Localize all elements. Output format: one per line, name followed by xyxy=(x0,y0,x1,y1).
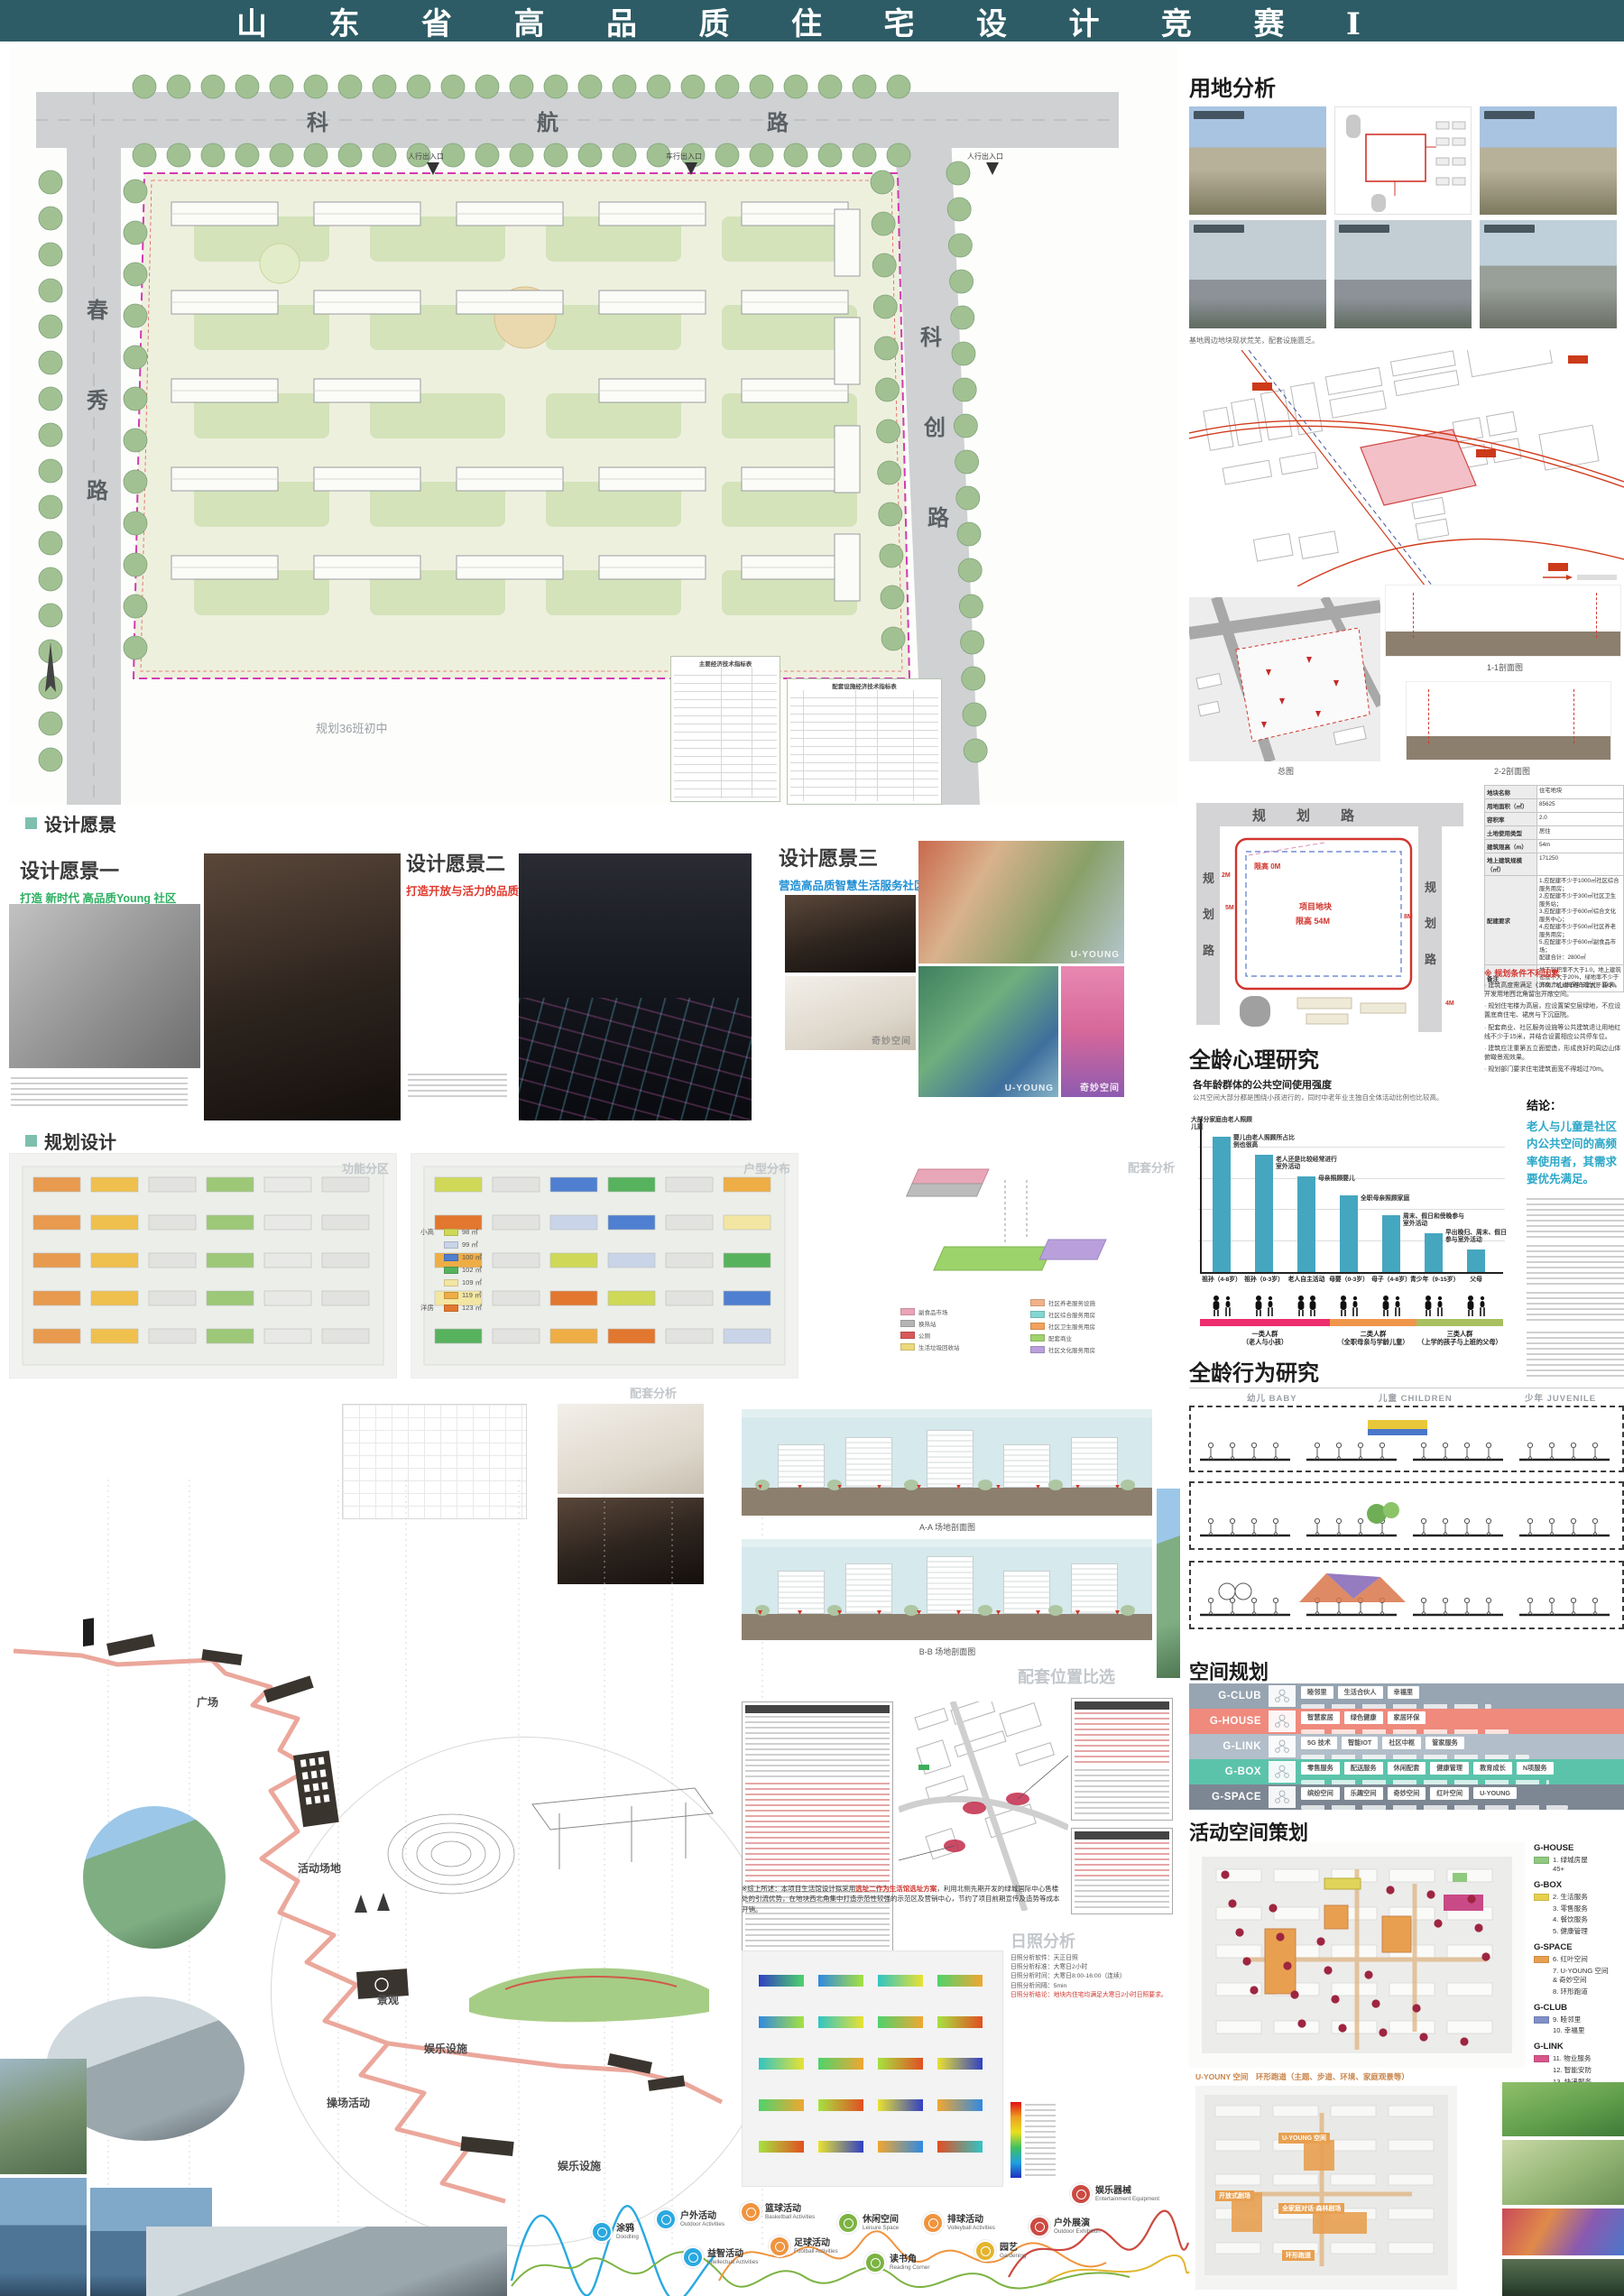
conditions-row: 用地面积（㎡）85625 xyxy=(1485,799,1623,813)
ap-legend-item: 11. 物业服务 xyxy=(1534,2054,1624,2063)
section-ground xyxy=(742,1488,1152,1516)
watermark-wonder-space: 奇妙空间 xyxy=(872,1033,911,1047)
sunshine-building xyxy=(759,2141,804,2153)
space-band-g-link: G-LINK5G 技术智能IOT社区中枢管家服务 xyxy=(1189,1734,1624,1759)
textbox-body-text xyxy=(1075,1769,1169,1814)
section-tree xyxy=(1048,1480,1063,1490)
site-analysis-caption: 基地周边地块现状荒芜，配套设施匮乏。 xyxy=(1189,336,1319,346)
band-chip: 幸福里 xyxy=(1388,1686,1420,1699)
poster-title-bar: 山 东 省 高 品 质 住 宅 设 计 竞 赛 Ⅰ xyxy=(0,0,1624,41)
activity-badge-text: 娱乐器械Entertainment Equipment xyxy=(1095,2186,1159,2202)
conditions-diagram: 规划路 规 划 路 规 划 路 限高 0M 项目地块 限高 54M 2M 5M … xyxy=(1189,783,1478,1032)
people-pictogram-icon xyxy=(1333,1294,1364,1317)
bar-category: 祖孙（4-8岁） xyxy=(1198,1277,1245,1284)
section-marker-icon xyxy=(25,1135,37,1147)
table-body xyxy=(790,690,938,801)
activity-badge-text: 涂鸦Doodling xyxy=(616,2224,639,2240)
photo-label-chip xyxy=(1339,225,1389,233)
ap-legend-text: 11. 物业服务 xyxy=(1553,2054,1591,2063)
activity-icon xyxy=(740,2201,761,2223)
activity-en-label: Outdoor Activities xyxy=(680,2221,724,2227)
watermark-wonder-space: 奇妙空间 xyxy=(1080,1080,1120,1093)
legend-swatch xyxy=(1534,1894,1549,1901)
conclusion-title: 结论： xyxy=(1527,1096,1624,1113)
activity-icon xyxy=(864,2252,886,2273)
svg-text:科: 科 xyxy=(307,111,328,135)
unit-legend-row: 119 ㎡ xyxy=(420,1290,482,1300)
issue-item: 规划住宅楼为高层，应设置架空层绿地，不应设置底商住宅、裙房与下沉庭院。 xyxy=(1484,1002,1624,1020)
ap-legend-item: 12. 智能安防 xyxy=(1534,2066,1624,2075)
watermark-u-young: U-YOUNG xyxy=(1005,1083,1054,1093)
activity-en-label: Doodling xyxy=(616,2234,639,2240)
section-building xyxy=(845,1437,892,1488)
conclusion-text: 老人与儿童是社区内公共空间的高频率使用者，其需求要优先满足。 xyxy=(1527,1119,1624,1189)
band-chips: 缤纷空间乐趣空间奇妙空间红叶空间U-YOUNG xyxy=(1296,1784,1624,1810)
bar-7 xyxy=(1467,1249,1485,1272)
group-band-label: 二类人群 （全职母亲与学龄儿童） xyxy=(1330,1330,1416,1347)
activity-zh-label: 篮球活动 xyxy=(765,2204,815,2214)
site-photo-4 xyxy=(1189,220,1326,328)
sunshine-building xyxy=(759,2016,804,2028)
vision-2-caption-text xyxy=(408,1074,507,1097)
activity-zh-label: 户外活动 xyxy=(680,2211,724,2221)
band-chip: 智慧家居 xyxy=(1301,1711,1340,1724)
band-chip: 5G 技术 xyxy=(1301,1737,1337,1749)
activity-en-label: Reading Corner xyxy=(890,2264,929,2271)
legend-swatch xyxy=(1534,1968,1549,1975)
people-pictogram-icon xyxy=(1206,1294,1237,1317)
svg-text:人行出入口: 人行出入口 xyxy=(408,152,444,161)
sunshine-param: 日照分析软件：天正日照 xyxy=(1010,1954,1173,1963)
context-axon-map xyxy=(1189,350,1624,586)
people-pictogram-icon xyxy=(1291,1294,1322,1317)
activity-badge-6: 休闲空间Leisure Space xyxy=(837,2212,899,2234)
ap-legend-text: 1. 绿城房屋 45+ xyxy=(1553,1856,1588,1874)
amenity-legend-label: 社区文化服务用房 xyxy=(1048,1345,1095,1354)
master-plan: 科航路春秀路科创路人行出入口车行出入口人行出入口规划36班初中 主要经济技术指标… xyxy=(9,47,1177,805)
legend-swatch xyxy=(444,1292,458,1299)
textbox-heading xyxy=(1075,1701,1169,1710)
conditions-row: 地上建筑规模（㎡）171250 xyxy=(1485,853,1623,876)
svg-text:2M: 2M xyxy=(1222,872,1231,879)
activity-zh-label: 益智活动 xyxy=(707,2249,758,2259)
bar-category: 父母 xyxy=(1453,1277,1499,1284)
competition-board: 山 东 省 高 品 质 住 宅 设 计 竞 赛 Ⅰ 科航路春秀路科创路人行出入口… xyxy=(0,0,1624,2296)
band-glyph-icon xyxy=(1269,1710,1296,1732)
group-band-label: 三类人群 （上学的孩子与上班的父母） xyxy=(1416,1330,1503,1347)
activity-plan-drawing xyxy=(1189,1842,1525,2068)
sunshine-building xyxy=(878,2058,923,2070)
svg-text:路: 路 xyxy=(87,478,109,503)
edge-photo-strip xyxy=(1157,1489,1180,1678)
space-band-g-box: G-BOX零售服务配送服务休闲配套健康管理教育成长N项服务 xyxy=(1189,1759,1624,1784)
sunshine-building xyxy=(937,1975,983,1987)
section-building xyxy=(778,1571,825,1614)
bottom-photo-street xyxy=(146,2227,507,2296)
legend-swatch xyxy=(1534,1916,1549,1923)
ap-legend-group: G-CLUB xyxy=(1534,2003,1624,2013)
plan2-label-uyoung: U-YOUNG 空间 xyxy=(1278,2133,1330,2144)
textbox-body-text xyxy=(745,1716,890,1779)
sunshine-param: 日照分析时间：大寒日8:00-16:00（连续） xyxy=(1010,1972,1173,1981)
vision-item-3: 设计愿景三 营造高品质智慧生活服务社区 xyxy=(779,843,926,893)
conditions-key: 建筑限高（m） xyxy=(1485,840,1537,853)
band-chip: 睦邻里 xyxy=(1301,1686,1333,1699)
section-a-drawing xyxy=(742,1409,1152,1516)
ap-legend-text: 2. 生活服务 xyxy=(1553,1893,1588,1902)
siting-axon-diagram xyxy=(899,1701,1068,1911)
svg-text:路: 路 xyxy=(1203,944,1215,957)
band-name-label: G-HOUSE xyxy=(1189,1709,1269,1734)
band-chip: 乐趣空间 xyxy=(1344,1787,1383,1800)
amenity-legend-label: 副食品市场 xyxy=(918,1307,948,1316)
ap-legend-text: 3. 零售服务 xyxy=(1553,1904,1588,1913)
unit-legend-label: 102 ㎡ xyxy=(462,1265,482,1275)
textbox-heading xyxy=(745,1705,890,1713)
unit-legend-label: 123 ㎡ xyxy=(462,1303,482,1313)
amenity-legend-label: 社区养老服务设施 xyxy=(1048,1298,1095,1307)
svg-text:科: 科 xyxy=(920,326,942,350)
ap-legend-text: 12. 智能安防 xyxy=(1553,2066,1592,2075)
bar-1 xyxy=(1213,1137,1231,1272)
space-band-g-house: G-HOUSE智慧家居绿色健康家居环保 xyxy=(1189,1709,1624,1734)
section-tree xyxy=(1121,1480,1135,1490)
section-building xyxy=(927,1556,973,1614)
svg-text:规划36班初中: 规划36班初中 xyxy=(316,722,387,735)
conclusion-paragraph-text xyxy=(1527,1332,1624,1379)
svg-text:车行出入口: 车行出入口 xyxy=(666,152,702,161)
svg-text:路: 路 xyxy=(927,505,950,530)
ap-legend-item: 3. 零售服务 xyxy=(1534,1904,1624,1913)
legend-swatch xyxy=(900,1320,915,1327)
journey-label: 娱乐设施 xyxy=(558,2158,601,2173)
conditions-value: 171250 xyxy=(1537,853,1623,875)
diagram-amenity-analysis: 配套分析 副食品市场换热站公厕生活垃圾回收站 社区养老服务设施社区综合服务用房社… xyxy=(812,1153,1182,1379)
section-b-caption: B-B 场地剖面图 xyxy=(884,1646,1010,1657)
bar-annotation: 周末、假日和傍晚参与室外活动 xyxy=(1403,1213,1470,1229)
people-pictogram-icon xyxy=(1376,1294,1407,1317)
band-subtext xyxy=(1301,1805,1568,1810)
conditions-issues: ※ 规划条件不利因素 建筑高度需满足《济南市山体保护规划》要求，开发用地西北角留… xyxy=(1484,967,1624,1074)
ap-legend-item: 10. 幸福里 xyxy=(1534,2026,1624,2035)
note-red-text: 选址二作为生活馆选址方案 xyxy=(855,1885,937,1893)
ap-legend-group: G-LINK xyxy=(1534,2042,1624,2052)
terrain-map xyxy=(1189,597,1380,761)
activity-plan-map xyxy=(1189,1842,1525,2068)
conditions-key: 地块名称 xyxy=(1485,786,1537,798)
led-floor-grid xyxy=(519,998,752,1120)
ap-legend-group: G-BOX xyxy=(1534,1880,1624,1890)
sunshine-param: 日照分析结论：地块内住宅均满足大寒日2小时日照要求。 xyxy=(1010,1991,1173,2000)
activity-plan2-drawing xyxy=(1195,2086,1457,2290)
activity-plan-map-2: U-YOUNG 空间 开放式剧场 全家庭对话·森林剧场 环形跑道 xyxy=(1195,2086,1457,2290)
band-glyph-icon xyxy=(1269,1786,1296,1808)
activity-icon xyxy=(655,2208,677,2230)
conditions-row: 地块名称住宅地块 xyxy=(1485,786,1623,799)
svg-text:5M: 5M xyxy=(1225,905,1234,911)
vision-header-text: 设计愿景 xyxy=(44,810,116,836)
vision-3-photo-gathering xyxy=(785,895,916,973)
band-chips: 睦邻里生活合伙人幸福里 xyxy=(1296,1683,1624,1709)
band-chip: 健康管理 xyxy=(1430,1762,1469,1775)
bar-2 xyxy=(1255,1155,1273,1272)
activity-badge-10: 户外展演Outdoor Exhibition xyxy=(1029,2216,1101,2237)
activity-badge-text: 园艺Gardening xyxy=(1000,2243,1026,2259)
legend-swatch xyxy=(1030,1334,1045,1342)
ap-legend-text: 6. 红叶空间 xyxy=(1553,1955,1588,1964)
master-plan-drawing: 科航路春秀路科创路人行出入口车行出入口人行出入口规划36班初中 xyxy=(9,47,1177,805)
legend-swatch xyxy=(900,1332,915,1339)
diagram-label: 户型分布 xyxy=(743,1159,790,1176)
ap-legend-item: 4. 餐饮服务 xyxy=(1534,1915,1624,1924)
activity-badge-1: 涂鸦Doodling xyxy=(591,2221,639,2243)
amenity-legend-row: 副食品市场 xyxy=(900,1307,960,1316)
section-building xyxy=(1003,1444,1050,1488)
issues-list: 建筑高度需满足《济南市山体保护规划》要求，开发用地西北角留出开敞空间。规划住宅楼… xyxy=(1484,982,1624,1074)
legend-swatch xyxy=(1030,1346,1045,1353)
activity-icon xyxy=(974,2240,996,2262)
unit-legend-row: 109 ㎡ xyxy=(420,1277,482,1287)
section-tree xyxy=(904,1480,918,1490)
activity-badge-9: 园艺Gardening xyxy=(974,2240,1026,2262)
ap-legend-item: 5. 健康管理 xyxy=(1534,1927,1624,1936)
activity-badge-text: 户外展演Outdoor Exhibition xyxy=(1054,2218,1101,2235)
activity-badge-text: 户外活动Outdoor Activities xyxy=(680,2211,724,2227)
sunshine-building xyxy=(759,1975,804,1987)
sunshine-color-scale xyxy=(1010,2102,1021,2178)
site-photo-1 xyxy=(1189,106,1326,215)
diagram-unit-distribution: 户型分布 小高98 ㎡99 ㎡100 ㎡102 ㎡109 ㎡119 ㎡洋房123… xyxy=(411,1153,798,1379)
sunshine-param: 日照分析标准：大寒日2小时 xyxy=(1010,1963,1173,1972)
band-name-label: G-BOX xyxy=(1189,1759,1269,1784)
band-glyph-icon xyxy=(1269,1761,1296,1783)
activity-badge-text: 益智活动Intellectual Activities xyxy=(707,2249,758,2265)
band-chip: 配送服务 xyxy=(1344,1762,1383,1775)
behavior-row-3 xyxy=(1189,1561,1624,1629)
issue-item: 建筑应注重第五立面塑造，形成良好的周边山体俯瞰景观效果。 xyxy=(1484,1045,1624,1063)
svg-text:航: 航 xyxy=(537,110,558,135)
siting-option-2-textbox xyxy=(1071,1698,1173,1821)
space-plan-bands: G-CLUB睦邻里生活合伙人幸福里G-HOUSE智慧家居绿色健康家居环保G-LI… xyxy=(1189,1683,1624,1810)
behavior-col-baby: 幼儿 BABY xyxy=(1247,1391,1297,1404)
behavior-header: 全龄行为研究 xyxy=(1189,1355,1319,1387)
note-text: ※综上所述：本项目生活馆设计拟采用 xyxy=(742,1885,855,1893)
amenity-legend-label: 配套商业 xyxy=(1048,1333,1072,1342)
textbox-body-red-text xyxy=(1075,1842,1169,1876)
sunshine-building xyxy=(759,2058,804,2070)
watermark-u-young: U-YOUNG xyxy=(1071,950,1120,960)
ap-legend-text: 9. 睦邻里 xyxy=(1553,2015,1581,2024)
diagram-label: 功能分区 xyxy=(342,1159,389,1176)
band-chips: 智慧家居绿色健康家居环保 xyxy=(1296,1709,1624,1734)
section-tree xyxy=(755,1480,770,1490)
psychology-header: 全龄心理研究 xyxy=(1189,1042,1319,1074)
amenity-legend-row: 配套商业 xyxy=(1030,1333,1095,1342)
svg-text:规: 规 xyxy=(1425,881,1436,894)
activity-icon xyxy=(1070,2183,1092,2205)
amenity-axon xyxy=(812,1153,1182,1379)
function-zoning-plan xyxy=(10,1154,396,1378)
activity-zh-label: 户外展演 xyxy=(1054,2218,1101,2228)
vision-section-header: 设计愿景 xyxy=(25,810,116,836)
people-pictogram-icon xyxy=(1249,1294,1279,1317)
context-section-1 xyxy=(1385,585,1621,657)
conditions-row: 容积率2.0 xyxy=(1485,813,1623,826)
vision-2-photo-night-plaza xyxy=(519,853,752,1120)
psychology-subtitle: 各年龄群体的公共空间使用强度 xyxy=(1193,1077,1332,1092)
svg-text:路: 路 xyxy=(1425,953,1437,966)
bar-category: 母子（4-8岁） xyxy=(1368,1277,1415,1284)
band-glyph-icon xyxy=(1269,1685,1296,1707)
unit-legend-row: 100 ㎡ xyxy=(420,1252,482,1262)
band-chip: N项服务 xyxy=(1517,1762,1554,1775)
bar-annotation: 母亲照顾婴儿 xyxy=(1318,1176,1385,1183)
svg-text:限高 0M: 限高 0M xyxy=(1254,862,1281,871)
ap-legend-text: 7. U-YOUNG 空间 & 奇妙空间 xyxy=(1553,1967,1609,1985)
reference-photo-canopy xyxy=(1502,2208,1624,2255)
space-band-g-space: G-SPACE缤纷空间乐趣空间奇妙空间红叶空间U-YOUNG xyxy=(1189,1784,1624,1810)
amenity-legend-label: 社区综合服务用房 xyxy=(1048,1310,1095,1319)
legend-swatch xyxy=(1534,1928,1549,1935)
conditions-key: 土地使用类型 xyxy=(1485,826,1537,839)
legend-swatch xyxy=(444,1254,458,1261)
sunshine-building xyxy=(878,1975,923,1987)
activity-en-label: Football Activities xyxy=(794,2248,838,2255)
conditions-key: 配建要求 xyxy=(1485,876,1537,964)
behavior-col-juvenile: 少年 JUVENILE xyxy=(1525,1391,1596,1404)
planning-section-header: 规划设计 xyxy=(25,1128,116,1154)
photo-label-chip xyxy=(1194,225,1244,233)
ap-legend-text: 4. 餐饮服务 xyxy=(1553,1915,1588,1924)
legend-swatch xyxy=(444,1305,458,1312)
legend-swatch xyxy=(1534,2016,1549,2024)
bar-category: 青少年（9-15岁） xyxy=(1410,1277,1457,1284)
unit-legend-group: 小高 xyxy=(420,1227,440,1237)
journey-label: 操场活动 xyxy=(327,2095,370,2110)
activity-icon xyxy=(922,2212,944,2234)
photo-label-chip xyxy=(1484,111,1535,119)
amenity-legend-label: 公厕 xyxy=(918,1331,930,1340)
poster-title: 山 东 省 高 品 质 住 宅 设 计 竞 赛 Ⅰ xyxy=(236,0,1388,43)
activity-badge-text: 排球活动Volleyball Activities xyxy=(947,2215,995,2231)
psychology-bar-chart: 大部分家庭由老人照顾儿童祖孙（4-8岁）婴儿由老人照顾所占比例也很高祖孙（0-3… xyxy=(1189,1108,1510,1350)
bar-annotation: 大部分家庭由老人照顾儿童 xyxy=(1191,1117,1258,1132)
bar-annotation: 全职母亲照顾家庭 xyxy=(1361,1195,1427,1203)
vision-3-photo-courts: U-YOUNG xyxy=(918,966,1058,1097)
activity-badge-text: 篮球活动Basketball Activities xyxy=(765,2204,815,2220)
ap-legend-group: G-HOUSE xyxy=(1534,1843,1624,1853)
band-chip: 休闲配套 xyxy=(1388,1762,1426,1775)
activity-en-label: Intellectual Activities xyxy=(707,2259,758,2265)
ap-legend-item: 2. 生活服务 xyxy=(1534,1893,1624,1902)
bottom-photo-aerial xyxy=(0,2059,87,2174)
vision-1-caption-text xyxy=(11,1077,188,1108)
sunshine-building xyxy=(818,2099,863,2111)
activity-badge-2: 户外活动Outdoor Activities xyxy=(655,2208,724,2230)
band-glyph-icon xyxy=(1269,1736,1296,1757)
activity-en-label: Volleyball Activities xyxy=(947,2225,995,2231)
ap-legend-text: 5. 健康管理 xyxy=(1553,1927,1588,1936)
activity-icon xyxy=(591,2221,613,2243)
siting-option-1-textbox xyxy=(742,1701,893,1972)
unit-legend-label: 99 ㎡ xyxy=(462,1240,478,1249)
activity-zh-label: 园艺 xyxy=(1000,2243,1026,2253)
unit-legend-row: 洋房123 ㎡ xyxy=(420,1303,482,1313)
sunshine-building xyxy=(759,2099,804,2111)
amenity-legend-row: 社区综合服务用房 xyxy=(1030,1310,1095,1319)
sunshine-header: 日照分析 xyxy=(1010,1929,1075,1952)
unit-legend-row: 小高98 ㎡ xyxy=(420,1227,482,1237)
conditions-value: 居住 xyxy=(1537,826,1623,839)
diagram-label: 配套分析 xyxy=(1128,1158,1175,1176)
section-marker-icon xyxy=(25,817,37,829)
conditions-value: 1.应配建不少于1000㎡社区综合服务用房； 2.应配建不少于300㎡社区卫生服… xyxy=(1537,876,1623,964)
legend-swatch xyxy=(444,1279,458,1286)
band-chip: 缤纷空间 xyxy=(1301,1787,1340,1800)
people-pictogram-icon xyxy=(1461,1294,1491,1317)
vision-3-title: 设计愿景三 xyxy=(779,843,926,871)
ap-legend-item: 7. U-YOUNG 空间 & 奇妙空间 xyxy=(1534,1967,1624,1985)
chart-y-axis xyxy=(1200,1119,1202,1272)
planning-header-text: 规划设计 xyxy=(44,1128,116,1154)
svg-text:创: 创 xyxy=(923,416,946,440)
sunshine-building xyxy=(818,1975,863,1987)
amenity-legend-row: 社区卫生服务用房 xyxy=(1030,1322,1095,1331)
group-band-2 xyxy=(1330,1319,1416,1326)
svg-text:春: 春 xyxy=(87,299,108,323)
site-photo-2 xyxy=(1334,106,1472,215)
vision-3-subtitle: 营造高品质智慧生活服务社区 xyxy=(779,876,926,893)
amenity-legend-left: 副食品市场换热站公厕生活垃圾回收站 xyxy=(900,1305,960,1351)
band-chip: 零售服务 xyxy=(1301,1762,1340,1775)
band-chip: 管家服务 xyxy=(1426,1737,1464,1749)
activity-en-label: Basketball Activities xyxy=(765,2214,815,2220)
siting-header: 配套位置比选 xyxy=(1018,1664,1115,1688)
conditions-value: 54m xyxy=(1537,840,1623,853)
ap-legend-item: 8. 环形跑道 xyxy=(1534,1987,1624,1996)
context-section-2-caption: 2-2剖面图 xyxy=(1467,765,1557,777)
activity-en-label: Entertainment Equipment xyxy=(1095,2196,1159,2202)
reference-photo-trees xyxy=(1502,2259,1624,2296)
axon-legend xyxy=(1543,575,1617,580)
behavior-col-children: 儿童 CHILDREN xyxy=(1379,1391,1453,1404)
section-building xyxy=(1071,1563,1118,1614)
table-body xyxy=(674,668,777,798)
band-name-label: G-CLUB xyxy=(1189,1683,1269,1709)
sunshine-building xyxy=(937,2141,983,2153)
bar-annotation: 早出晚归、周末、假日参与室外活动 xyxy=(1445,1230,1512,1245)
journey-photo-residential xyxy=(83,1806,226,1949)
journey-label: 广场 xyxy=(197,1694,218,1710)
legend-swatch xyxy=(444,1241,458,1249)
psychology-description: 公共空间大部分都是围绕小孩进行的，同时中老年业主独自全体活动比例也比较高。 xyxy=(1193,1093,1444,1102)
amenity-legend-label: 社区卫生服务用房 xyxy=(1048,1322,1095,1331)
conditions-key: 容积率 xyxy=(1485,813,1537,825)
vision-3-photo-outdoor-cinema: U-YOUNG xyxy=(918,841,1124,964)
issue-item: 建筑高度需满足《济南市山体保护规划》要求，开发用地西北角留出开敞空间。 xyxy=(1484,982,1624,1000)
svg-text:8M: 8M xyxy=(1404,914,1413,920)
sunshine-building xyxy=(937,2099,983,2111)
band-name-label: G-LINK xyxy=(1189,1734,1269,1759)
textbox-body-red-text xyxy=(745,1783,890,1882)
sunshine-building xyxy=(818,2141,863,2153)
behavior-row-1 xyxy=(1189,1406,1624,1472)
behavior-sketch xyxy=(1191,1407,1622,1471)
ap-legend-item: 1. 绿城房屋 45+ xyxy=(1534,1856,1624,1874)
ap-legend-item: 9. 睦邻里 xyxy=(1534,2015,1624,2024)
sunshine-building xyxy=(818,2058,863,2070)
diagram-function-zoning: 功能分区 xyxy=(9,1153,397,1379)
